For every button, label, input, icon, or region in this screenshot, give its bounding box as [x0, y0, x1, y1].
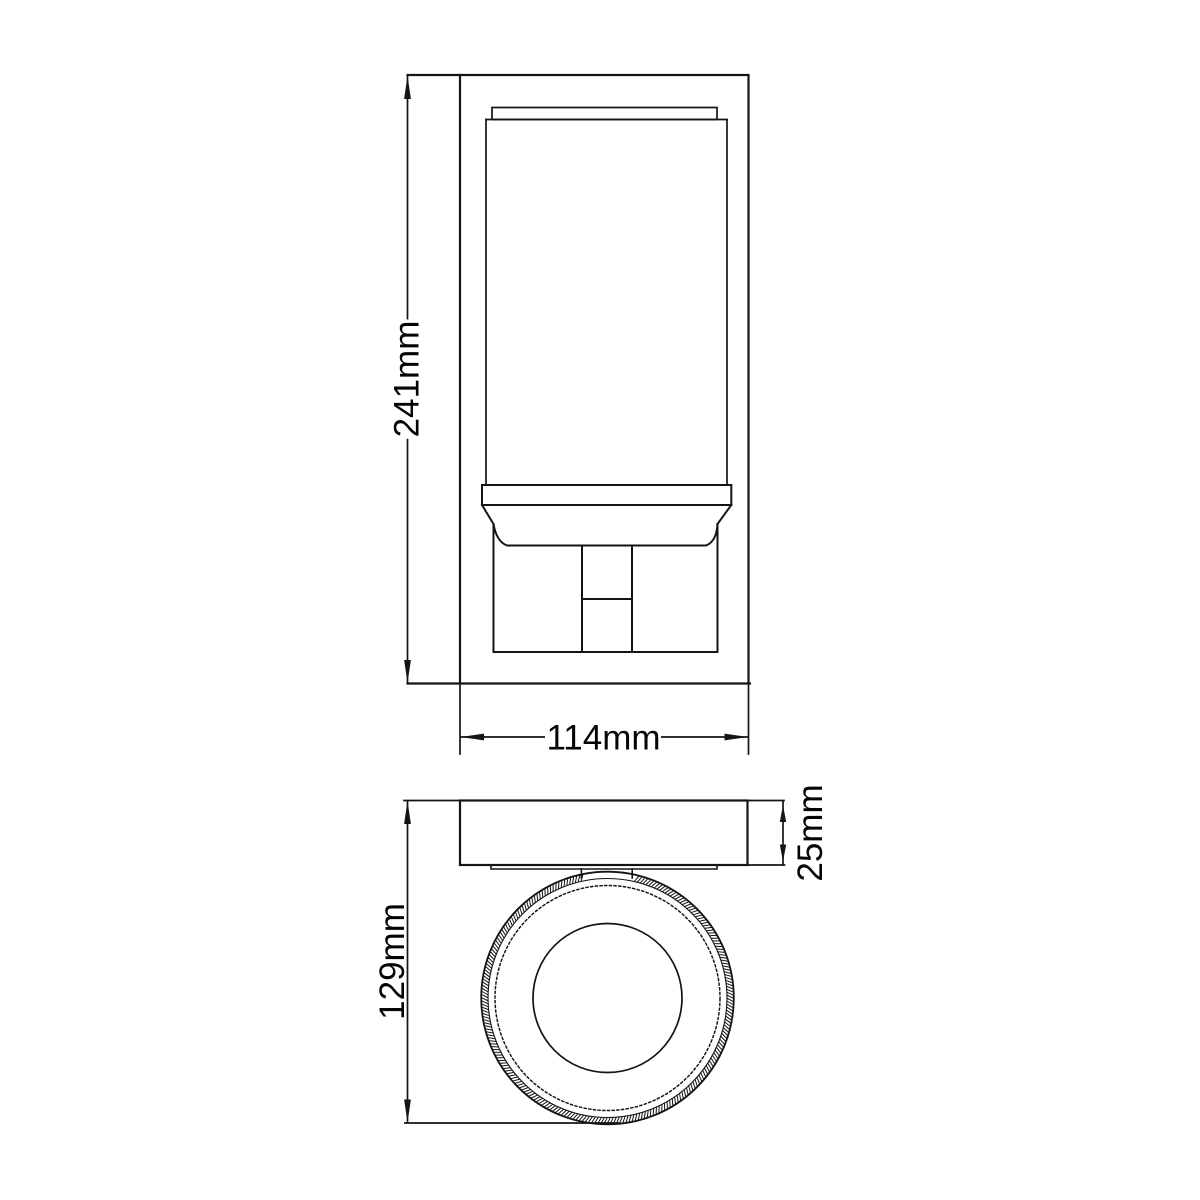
svg-text:241mm: 241mm — [388, 321, 427, 438]
svg-text:114mm: 114mm — [546, 719, 660, 758]
svg-text:129mm: 129mm — [373, 903, 412, 1020]
svg-text:25mm: 25mm — [791, 784, 830, 881]
